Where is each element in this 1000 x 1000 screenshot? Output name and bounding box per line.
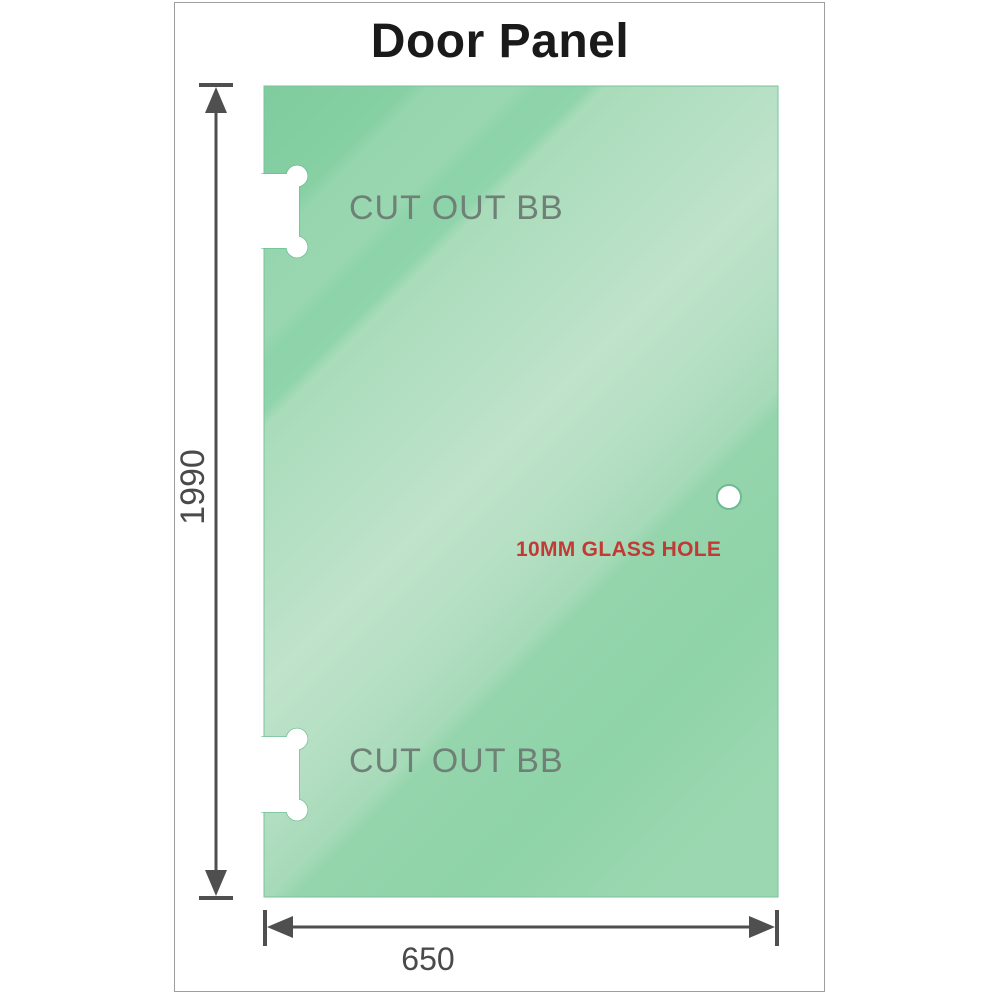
arrowhead-down-icon (205, 870, 227, 896)
width-dimension-arrow (265, 910, 777, 946)
width-dimension-value: 650 (378, 941, 478, 978)
cutout-label-top: CUT OUT BB (349, 189, 564, 228)
cutout-label-bottom: CUT OUT BB (349, 742, 564, 781)
glass-hole (717, 485, 741, 509)
arrowhead-right-icon (749, 916, 775, 938)
arrowhead-up-icon (205, 87, 227, 113)
height-dimension-value: 1990 (174, 427, 208, 547)
glass-hole-label: 10MM GLASS HOLE (516, 538, 721, 562)
door-panel-drawing (0, 0, 1000, 1000)
arrowhead-left-icon (267, 916, 293, 938)
